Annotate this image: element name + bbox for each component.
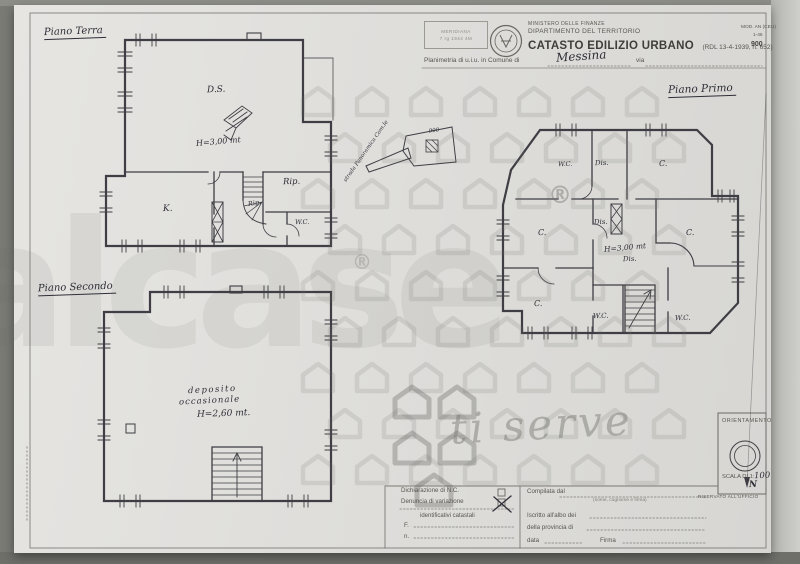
backdrop-right (771, 0, 800, 564)
room-label-wc3: W.C. (675, 315, 691, 323)
ministry-line2: DIPARTIMENTO DEL TERRITORIO (528, 29, 640, 36)
form-compilata-label: Compilata dal (527, 489, 565, 495)
stamp-line: 7 rg 1944 4M (440, 36, 473, 41)
document-sheet (14, 5, 771, 553)
room-label-dis1: Dis. (595, 160, 609, 167)
height-note-second: H=2,60 mt. (197, 409, 251, 420)
date-stamp: MERIDIANA 7 rg 1944 4M (424, 21, 488, 49)
room-label-wc-ground: W.C. (295, 219, 310, 226)
form-denuncia-label: Denuncia di variazione (401, 499, 464, 505)
ground-floor-title: Piano Terra (44, 26, 106, 40)
backdrop-bottom (0, 552, 800, 564)
form-provincia-label: della provincia di (527, 525, 573, 531)
form-foglio-label: F. (404, 523, 409, 529)
orientation-title: ORIENTAMENTO (722, 419, 772, 425)
room-label-c2: C. (538, 229, 547, 237)
mod-label: MOD. AN (CEU) (741, 26, 776, 31)
room-label-k: K. (163, 205, 173, 214)
photo-stage: italcase (0, 0, 800, 564)
via-label: via (636, 58, 644, 65)
form-dichiarazione-label: Dichiarazione di N.C. (401, 488, 459, 494)
room-label-wc1: W.C. (558, 161, 573, 168)
ministry-line1: MINISTERO DELLE FINANZE (528, 22, 605, 27)
form-compilata-sub: (nome, cognome e firma) (593, 499, 647, 504)
room-label-c4: C. (534, 300, 543, 308)
comune-handwritten-value: Messina (556, 48, 607, 63)
room-label-rip: Rip. (283, 178, 301, 187)
mod-number: 900 (751, 41, 763, 48)
room-label-c1: C. (659, 160, 668, 168)
form-numero-label: n. (404, 534, 409, 540)
form-firma-label: Firma (600, 538, 616, 544)
form-data-label: data (527, 538, 539, 544)
room-label-dis3: Dis. (623, 256, 637, 263)
mod-sub: 1-46 (753, 34, 763, 39)
room-label-ds: D.S. (207, 86, 226, 96)
form-iscritto-label: Iscritto all'albo dei (527, 513, 576, 519)
planimetria-label: Planimetria di u.i.u. in Comune di (424, 58, 519, 65)
form-identificativi-title: identificativi catastali (420, 513, 475, 519)
title-main: CATASTO EDILIZIO URBANO (528, 40, 694, 52)
first-floor-title: Piano Primo (668, 83, 736, 98)
room-label-dis2: Dis. (594, 219, 608, 226)
north-label: N (749, 481, 758, 490)
stamp-line: MERIDIANA (441, 29, 471, 34)
room-label-wc2: W.C. (593, 313, 609, 321)
reserved-office-label: RISERVATO ALL'UFFICIO (698, 495, 758, 500)
room-label-c3: C. (686, 229, 695, 237)
